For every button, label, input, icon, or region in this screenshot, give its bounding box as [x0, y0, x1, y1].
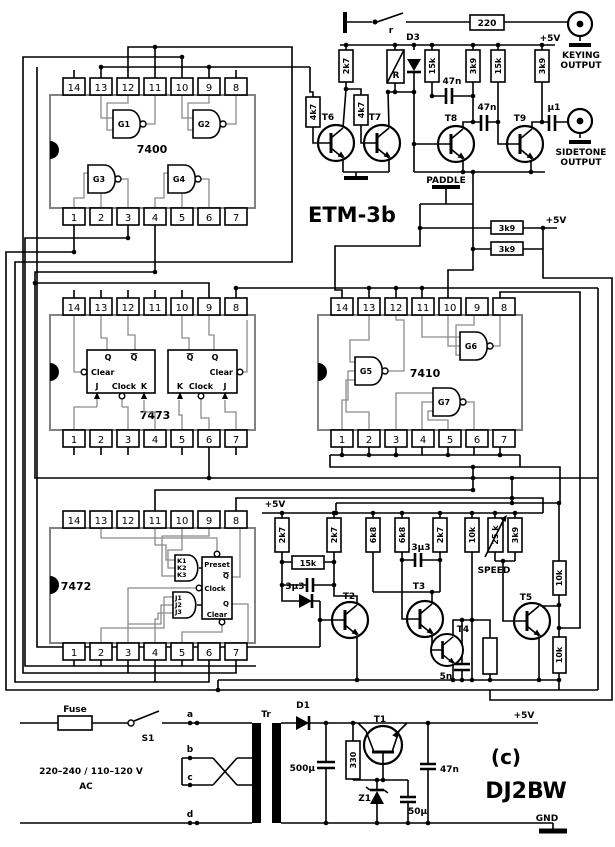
gate-g1-label: G1 — [118, 120, 131, 129]
pin-number: 12 — [122, 83, 135, 94]
pin-number: 6 — [206, 213, 212, 224]
resistor-4k7-b-label: 4k7 — [357, 102, 366, 118]
ffl-qbar: Q — [131, 353, 138, 362]
pin-number: 8 — [501, 303, 507, 314]
clear-label: Clear — [207, 611, 228, 619]
resistor-3k9-paddle-a-label: 3k9 — [499, 224, 516, 233]
pin-number: 7 — [233, 213, 239, 224]
cap-3u3-a-label: 3µ3 — [285, 582, 304, 592]
speed-label: SPEED — [478, 566, 511, 576]
terminal-c-label: c — [187, 773, 192, 783]
cap-47n-ps-label: 47n — [440, 765, 459, 775]
ic-7473-pin-8: 8 — [225, 298, 247, 315]
ic-7410-pin-8: 8 — [493, 298, 515, 315]
pin-number: 13 — [95, 516, 108, 527]
transistor-t6 — [318, 125, 354, 161]
q-label: Q — [223, 600, 229, 608]
pin-number: 9 — [206, 83, 212, 94]
cap-500u-label: 500µ — [290, 764, 316, 774]
ic-7472-pin-7: 7 — [225, 643, 247, 660]
ic-7400-pin-10: 10 — [171, 78, 193, 95]
pin-number: 11 — [417, 303, 430, 314]
ic-7473-pin-2: 2 — [90, 430, 112, 447]
pin-number: 8 — [233, 303, 239, 314]
ic-7410-pin-3: 3 — [385, 430, 407, 447]
ffr-clock: Clock — [189, 382, 214, 391]
keying-output-label1: KEYING — [562, 51, 600, 61]
resistor-10k-label: 10k — [468, 526, 477, 543]
pin-number: 13 — [95, 83, 108, 94]
cap-50u-label: 50µ — [408, 807, 428, 817]
cap-47n-a — [446, 88, 452, 104]
pin-number: 8 — [233, 516, 239, 527]
ic-7473-pin-7: 7 — [225, 430, 247, 447]
diode-d3 — [407, 59, 421, 72]
schematic-canvas: 7400 G1 G2 G3 G4 7473 Q Q Clear J Clock … — [0, 0, 615, 847]
pin-number: 9 — [474, 303, 480, 314]
gate-g7-label: G7 — [438, 398, 450, 407]
pin-number: 13 — [95, 303, 108, 314]
terminal-d-label: d — [187, 810, 193, 820]
pin-number: 7 — [233, 648, 239, 659]
t2-label: T2 — [343, 592, 355, 602]
z1-label: Z1 — [358, 794, 371, 804]
ic-7472-pin-2: 2 — [90, 643, 112, 660]
pin-number: 9 — [206, 303, 212, 314]
pin-number: 14 — [68, 83, 81, 94]
ic-7472-pin-9: 9 — [198, 511, 220, 528]
resistor-3k9-timing-label: 3k9 — [511, 526, 520, 543]
ic-7473-pin-14: 14 — [63, 298, 85, 315]
pin-number: 10 — [176, 83, 189, 94]
transistor-t4 — [431, 634, 463, 666]
resistor-unlabeled — [483, 638, 497, 674]
resistor-220-label: 220 — [478, 19, 497, 29]
pin-number: 3 — [125, 213, 131, 224]
pin-number: 12 — [390, 303, 403, 314]
ic-7410: 7410 G5 G6 G7 — [318, 315, 522, 430]
ic-7472-pin-4: 4 — [144, 643, 166, 660]
resistor-10k-b-label: 10k — [555, 646, 564, 663]
pin-number: 10 — [444, 303, 457, 314]
ic-7472: 7472 K1 K2 K3 J1 J2 J3 Preset Q Clock Q … — [50, 528, 255, 643]
ic-7400-pin-6: 6 — [198, 208, 220, 225]
pin-number: 4 — [152, 435, 158, 446]
resistor-15k-timing-label: 15k — [300, 559, 317, 568]
sidetone-output-connector: SIDETONE OUTPUT — [556, 109, 607, 168]
ff-left-clear-bubble — [81, 369, 87, 375]
keying-output-connector: KEYING OUTPUT — [560, 12, 602, 71]
ic-7400-pin-12: 12 — [117, 78, 139, 95]
t1-label: T1 — [374, 715, 386, 725]
qbar-label: Q — [223, 572, 229, 580]
ic-7410-name: 7410 — [410, 367, 441, 380]
preset-bubble — [214, 551, 220, 557]
t8-label: T8 — [445, 114, 457, 124]
pin-number: 7 — [233, 435, 239, 446]
ic-7400-pin-11: 11 — [144, 78, 166, 95]
transistor-t1 — [364, 726, 402, 764]
gate-g3-label: G3 — [93, 175, 105, 184]
cap-u1-label: µ1 — [548, 103, 561, 113]
pin-number: 1 — [71, 648, 77, 659]
resistor-6k8-b-label: 6k8 — [398, 526, 407, 543]
ic-7473-pin-1: 1 — [63, 430, 85, 447]
cap-u1 — [549, 115, 555, 131]
keying-output-label2: OUTPUT — [560, 61, 602, 71]
pin-number: 8 — [233, 83, 239, 94]
ffr-k: K — [177, 382, 184, 391]
diode-timing — [299, 594, 312, 608]
gate-g3-bubble — [115, 176, 121, 182]
etm3b-title: ETM-3b — [308, 203, 396, 227]
switch-s1 — [128, 720, 134, 726]
resistor-3k9-a-label: 3k9 — [469, 57, 478, 74]
transistor-t5 — [514, 603, 550, 639]
clock-label: Clock — [204, 585, 225, 593]
resistor-10k-a-label: 10k — [555, 569, 564, 586]
speed-potentiometer: 25 k — [485, 515, 507, 557]
pin-number: 14 — [68, 516, 81, 527]
transistor-t9 — [507, 126, 543, 162]
pin-number: 14 — [336, 303, 349, 314]
ac-label: AC — [79, 782, 93, 792]
ic-7400-pin-9: 9 — [198, 78, 220, 95]
ic-7400-pin-1: 1 — [63, 208, 85, 225]
gate-g4-label: G4 — [173, 175, 186, 184]
gate-g5-label: G5 — [360, 367, 373, 376]
terminal-a-label: a — [187, 710, 193, 720]
gate-g6-label: G6 — [465, 342, 478, 351]
plus5v-paddle-label: +5V — [546, 216, 567, 226]
resistor-2k7-out-label: 2k7 — [342, 58, 351, 74]
ic-7400-pin-13: 13 — [90, 78, 112, 95]
transformer-primary — [252, 723, 261, 823]
ic-7400: 7400 G1 G2 G3 G4 — [50, 95, 255, 208]
pin-number: 6 — [206, 435, 212, 446]
pin-number: 10 — [176, 516, 189, 527]
cap-5n — [454, 664, 470, 670]
pin-number: 2 — [98, 213, 104, 224]
ic-7473-pin-11: 11 — [144, 298, 166, 315]
ff-right-clock-bubble — [198, 393, 204, 399]
cap-50u — [400, 797, 416, 802]
cap-47n-a-label: 47n — [443, 77, 462, 87]
ic-7472-name: 7472 — [61, 580, 92, 593]
gate-g2-bubble — [220, 121, 226, 127]
pin-number: 2 — [366, 435, 372, 446]
ic-7410-pin-5: 5 — [439, 430, 461, 447]
ic-7472-pin-10: 10 — [171, 511, 193, 528]
ic-7400-pin-8: 8 — [225, 78, 247, 95]
pin-number: 3 — [393, 435, 399, 446]
t4-label: T4 — [457, 625, 469, 635]
sidetone-label2: OUTPUT — [560, 158, 602, 168]
ic-7473-pin-13: 13 — [90, 298, 112, 315]
ic-7410-pin-9: 9 — [466, 298, 488, 315]
ic-7400-pin-5: 5 — [171, 208, 193, 225]
ic-7473-pin-3: 3 — [117, 430, 139, 447]
gate-g4-bubble — [195, 176, 201, 182]
pin-number: 11 — [149, 516, 162, 527]
t9-label: T9 — [514, 114, 526, 124]
pin-number: 11 — [149, 303, 162, 314]
preset-label: Preset — [204, 561, 230, 569]
ic-7473-pin-5: 5 — [171, 430, 193, 447]
ic-7400-pin-3: 3 — [117, 208, 139, 225]
cap-47n-b — [481, 115, 487, 131]
ffl-clear: Clear — [91, 368, 114, 377]
ic-7410-pin-12: 12 — [385, 298, 407, 315]
t3-label: T3 — [413, 582, 425, 592]
pin-number: 5 — [179, 435, 185, 446]
resistor-3k9-b-label: 3k9 — [538, 57, 547, 74]
ic-7410-pin-1: 1 — [331, 430, 353, 447]
resistor-2k7-t2-label: 2k7 — [330, 527, 339, 543]
cap-47n-ps — [420, 764, 436, 769]
gnd-label: GND — [536, 814, 558, 824]
pin-number: 4 — [152, 648, 158, 659]
cap-5n-label: 5n — [440, 672, 453, 682]
ic-7410-pin-4: 4 — [412, 430, 434, 447]
d1-label: D1 — [296, 701, 310, 711]
ic-7472-pin-12: 12 — [117, 511, 139, 528]
ic-7410-pin-7: 7 — [493, 430, 515, 447]
cap-3u3-b-label: 3µ3 — [411, 543, 430, 553]
ic-7473-pin-12: 12 — [117, 298, 139, 315]
transistor-t8 — [438, 126, 474, 162]
ic-7410-pin-6: 6 — [466, 430, 488, 447]
pin-number: 2 — [98, 648, 104, 659]
pin-number: 5 — [447, 435, 453, 446]
resistor-2k7-t3-label: 2k7 — [436, 527, 445, 543]
gate-g2-label: G2 — [198, 120, 210, 129]
ic-7410-pin-14: 14 — [331, 298, 353, 315]
ic-7473: 7473 Q Q Clear J Clock K Q Q Clear K Clo… — [50, 315, 255, 430]
ic-7400-pin-4: 4 — [144, 208, 166, 225]
relay-R: R — [387, 50, 404, 83]
ffr-qbar: Q — [187, 353, 194, 362]
ic-7410-pin-13: 13 — [358, 298, 380, 315]
resistor-6k8-a-label: 6k8 — [369, 526, 378, 543]
pin-number: 7 — [501, 435, 507, 446]
t6-label: T6 — [322, 113, 334, 123]
gate-g7-bubble — [460, 399, 466, 405]
clear-bubble — [219, 619, 225, 625]
pin-number: 1 — [339, 435, 345, 446]
ic-7472-pin-5: 5 — [171, 643, 193, 660]
pin-number: 13 — [363, 303, 376, 314]
k3-label: K3 — [177, 571, 187, 579]
ffl-clock: Clock — [112, 382, 137, 391]
ic-7410-pin-2: 2 — [358, 430, 380, 447]
relay-label: R — [393, 71, 400, 81]
ffl-q: Q — [105, 353, 112, 362]
author-label: DJ2BW — [485, 779, 567, 804]
copyright-label: (c) — [491, 745, 521, 769]
ffr-q: Q — [212, 353, 219, 362]
pin-number: 5 — [179, 213, 185, 224]
pin-number: 12 — [122, 516, 135, 527]
ic-7473-pin-10: 10 — [171, 298, 193, 315]
ic-7472-pin-6: 6 — [198, 643, 220, 660]
ic-7472-pin-3: 3 — [117, 643, 139, 660]
ffl-j: J — [95, 382, 99, 391]
pin-number: 4 — [152, 213, 158, 224]
clock-bubble — [196, 585, 202, 591]
pin-number: 2 — [98, 435, 104, 446]
cap-47n-b-label: 47n — [478, 103, 497, 113]
j3-label: J3 — [174, 608, 182, 616]
ic-7472-pin-11: 11 — [144, 511, 166, 528]
pin-number: 12 — [122, 303, 135, 314]
ic-7410-pin-11: 11 — [412, 298, 434, 315]
pin-number: 3 — [125, 435, 131, 446]
pin-number: 1 — [71, 213, 77, 224]
pin-number: 10 — [176, 303, 189, 314]
transistor-t2 — [332, 602, 368, 638]
pin-number: 11 — [149, 83, 162, 94]
transistor-t3 — [407, 601, 443, 637]
pin-number: 4 — [420, 435, 426, 446]
pin-number: 6 — [474, 435, 480, 446]
plus5v-ps-label: +5V — [514, 711, 535, 721]
ic-7400-name: 7400 — [137, 143, 168, 156]
ic-7473-pin-9: 9 — [198, 298, 220, 315]
pin-number: 6 — [206, 648, 212, 659]
ff-left-clock-bubble — [119, 393, 125, 399]
key-switch-label: r — [389, 26, 394, 36]
ic-7472-pin-14: 14 — [63, 511, 85, 528]
resistor-3k9-paddle-b-label: 3k9 — [499, 245, 516, 254]
pin-number: 3 — [125, 648, 131, 659]
ic-7473-pin-6: 6 — [198, 430, 220, 447]
fuse — [58, 716, 92, 730]
ic-7472-pin-1: 1 — [63, 643, 85, 660]
mains-voltage-label: 220–240 / 110–120 V — [39, 767, 143, 777]
resistor-2k7-t1-label: 2k7 — [278, 527, 287, 543]
ffr-j: J — [223, 382, 227, 391]
diode-d1 — [296, 716, 309, 730]
t7-label: T7 — [369, 113, 381, 123]
pin-number: 1 — [71, 435, 77, 446]
pin-number: 9 — [206, 516, 212, 527]
ic-7400-pin-7: 7 — [225, 208, 247, 225]
ffl-k: K — [141, 382, 148, 391]
d3-label: D3 — [406, 33, 420, 43]
sidetone-label1: SIDETONE — [556, 148, 607, 158]
resistor-15k-a-label: 15k — [428, 57, 437, 74]
cap-3u3-a — [307, 578, 313, 592]
t5-label: T5 — [520, 593, 532, 603]
gate-g6-bubble — [487, 343, 493, 349]
plus5v-timing-label: +5V — [265, 500, 286, 510]
ic-7400-pin-14: 14 — [63, 78, 85, 95]
ffr-clear: Clear — [210, 368, 233, 377]
ic-7400-pin-2: 2 — [90, 208, 112, 225]
pin-number: 5 — [179, 648, 185, 659]
plus5v-top-label: +5V — [540, 34, 561, 44]
resistor-15k-b-label: 15k — [494, 57, 503, 74]
transistor-t7 — [364, 125, 400, 161]
gate-g1-bubble — [140, 121, 146, 127]
ic-7472-pin-13: 13 — [90, 511, 112, 528]
gate-g5-bubble — [382, 368, 388, 374]
ic-7473-pin-4: 4 — [144, 430, 166, 447]
fuse-label: Fuse — [63, 705, 87, 715]
ff-right-clear-bubble — [237, 369, 243, 375]
transformer-label: Tr — [261, 710, 271, 720]
resistor-330-label: 330 — [349, 751, 358, 768]
pot-25k-label: 25 k — [491, 525, 500, 545]
pin-number: 14 — [68, 303, 81, 314]
s1-label: S1 — [142, 734, 155, 744]
ic-7410-pin-10: 10 — [439, 298, 461, 315]
cap-3u3-b — [415, 553, 421, 567]
ic-7472-pin-8: 8 — [225, 511, 247, 528]
cap-500u — [317, 762, 335, 768]
paddle-label: PADDLE — [426, 176, 466, 186]
transformer-secondary — [272, 723, 281, 823]
resistor-4k7-a-label: 4k7 — [309, 104, 318, 120]
terminal-b-label: b — [187, 745, 194, 755]
